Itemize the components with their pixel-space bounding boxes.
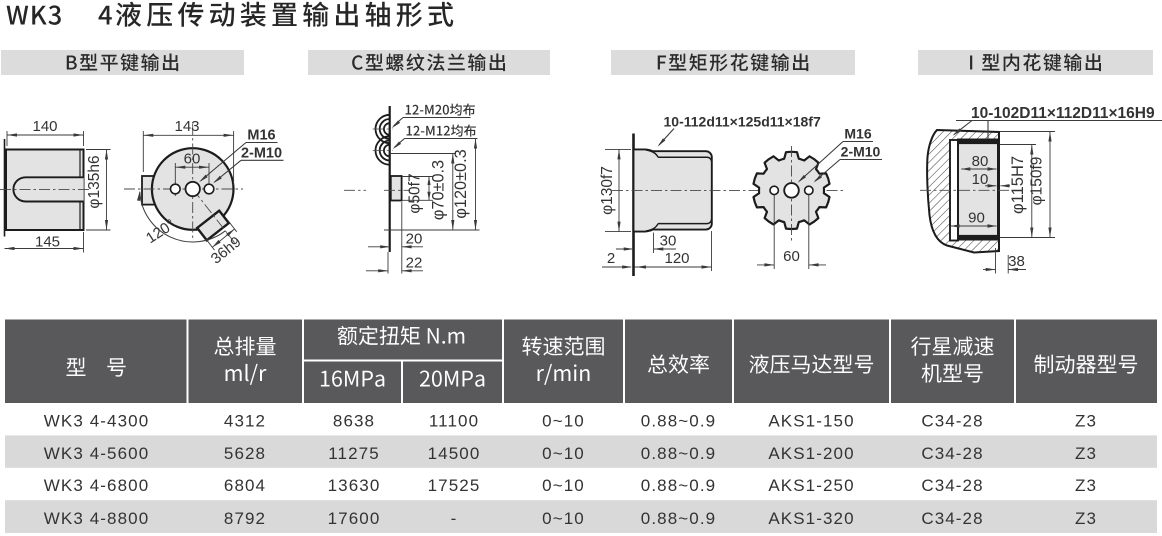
svg-text:30: 30: [660, 233, 677, 250]
svg-text:2: 2: [607, 250, 615, 267]
svg-text:φ120±0.3: φ120±0.3: [452, 149, 470, 218]
svg-text:145: 145: [35, 234, 60, 251]
svg-text:WK3 4-5600: WK3 4-5600: [44, 444, 150, 463]
svg-text:2-M10: 2-M10: [841, 144, 881, 160]
svg-text:60: 60: [783, 248, 800, 265]
svg-text:22: 22: [406, 255, 423, 272]
svg-text:11100: 11100: [429, 411, 479, 430]
svg-text:0.88~0.9: 0.88~0.9: [641, 411, 716, 430]
svg-text:5628: 5628: [224, 444, 266, 463]
svg-text:AKS1-150: AKS1-150: [768, 411, 854, 430]
svg-text:0.88~0.9: 0.88~0.9: [641, 476, 716, 495]
svg-text:0~10: 0~10: [542, 476, 585, 495]
svg-text:10-112d11×125d11×18f7: 10-112d11×125d11×18f7: [664, 114, 821, 130]
svg-text:17600: 17600: [328, 509, 381, 528]
svg-text:φ50f7: φ50f7: [407, 173, 424, 213]
svg-text:Z3: Z3: [1075, 444, 1097, 463]
svg-text:M16: M16: [247, 128, 275, 144]
svg-text:0~10: 0~10: [542, 444, 585, 463]
svg-text:8638: 8638: [333, 411, 375, 430]
svg-text:90: 90: [968, 210, 985, 227]
svg-text:C34-28: C34-28: [921, 509, 983, 528]
svg-text:143: 143: [174, 118, 199, 135]
svg-text:20: 20: [406, 231, 423, 248]
svg-text:6804: 6804: [224, 476, 266, 495]
svg-text:0.88~0.9: 0.88~0.9: [641, 444, 716, 463]
svg-text:Z3: Z3: [1075, 476, 1097, 495]
svg-text:M16: M16: [844, 126, 871, 142]
svg-text:17525: 17525: [428, 476, 481, 495]
svg-text:WK3 4-4300: WK3 4-4300: [44, 411, 150, 430]
svg-text:AKS1-320: AKS1-320: [768, 509, 854, 528]
svg-text:60: 60: [184, 151, 201, 168]
svg-text:4312: 4312: [224, 411, 266, 430]
svg-text:80: 80: [972, 153, 989, 170]
svg-text:13630: 13630: [328, 476, 381, 495]
svg-text:φ115H7: φ115H7: [1009, 156, 1027, 214]
svg-text:2-M10: 2-M10: [241, 146, 282, 162]
svg-text:WK3 4-6800: WK3 4-6800: [44, 476, 150, 495]
svg-text:AKS1-250: AKS1-250: [768, 476, 854, 495]
svg-text:φ135h6: φ135h6: [86, 155, 103, 208]
svg-text:0~10: 0~10: [542, 411, 585, 430]
svg-text:φ70±0.3: φ70±0.3: [430, 160, 448, 220]
svg-text:10-102D11×112D11×16H9: 10-102D11×112D11×16H9: [971, 105, 1155, 122]
svg-text:120: 120: [664, 250, 689, 267]
svg-text:Z3: Z3: [1075, 509, 1097, 528]
svg-text:C34-28: C34-28: [921, 444, 983, 463]
svg-text:WK3 4-8800: WK3 4-8800: [44, 509, 150, 528]
svg-text:Z3: Z3: [1075, 411, 1097, 430]
svg-text:C34-28: C34-28: [921, 411, 983, 430]
svg-text:11275: 11275: [328, 444, 380, 463]
svg-text:AKS1-200: AKS1-200: [768, 444, 854, 463]
svg-text:φ130f7: φ130f7: [599, 166, 616, 215]
svg-text:140: 140: [32, 118, 57, 135]
svg-text:38: 38: [1008, 253, 1025, 270]
svg-text:-: -: [451, 509, 458, 528]
svg-text:C34-28: C34-28: [921, 476, 983, 495]
svg-text:0~10: 0~10: [542, 509, 585, 528]
svg-text:0.88~0.9: 0.88~0.9: [641, 509, 716, 528]
svg-text:14500: 14500: [428, 444, 481, 463]
svg-text:36h9: 36h9: [208, 233, 245, 267]
svg-text:8792: 8792: [224, 509, 266, 528]
svg-text:φ150f9: φ150f9: [1029, 157, 1046, 206]
